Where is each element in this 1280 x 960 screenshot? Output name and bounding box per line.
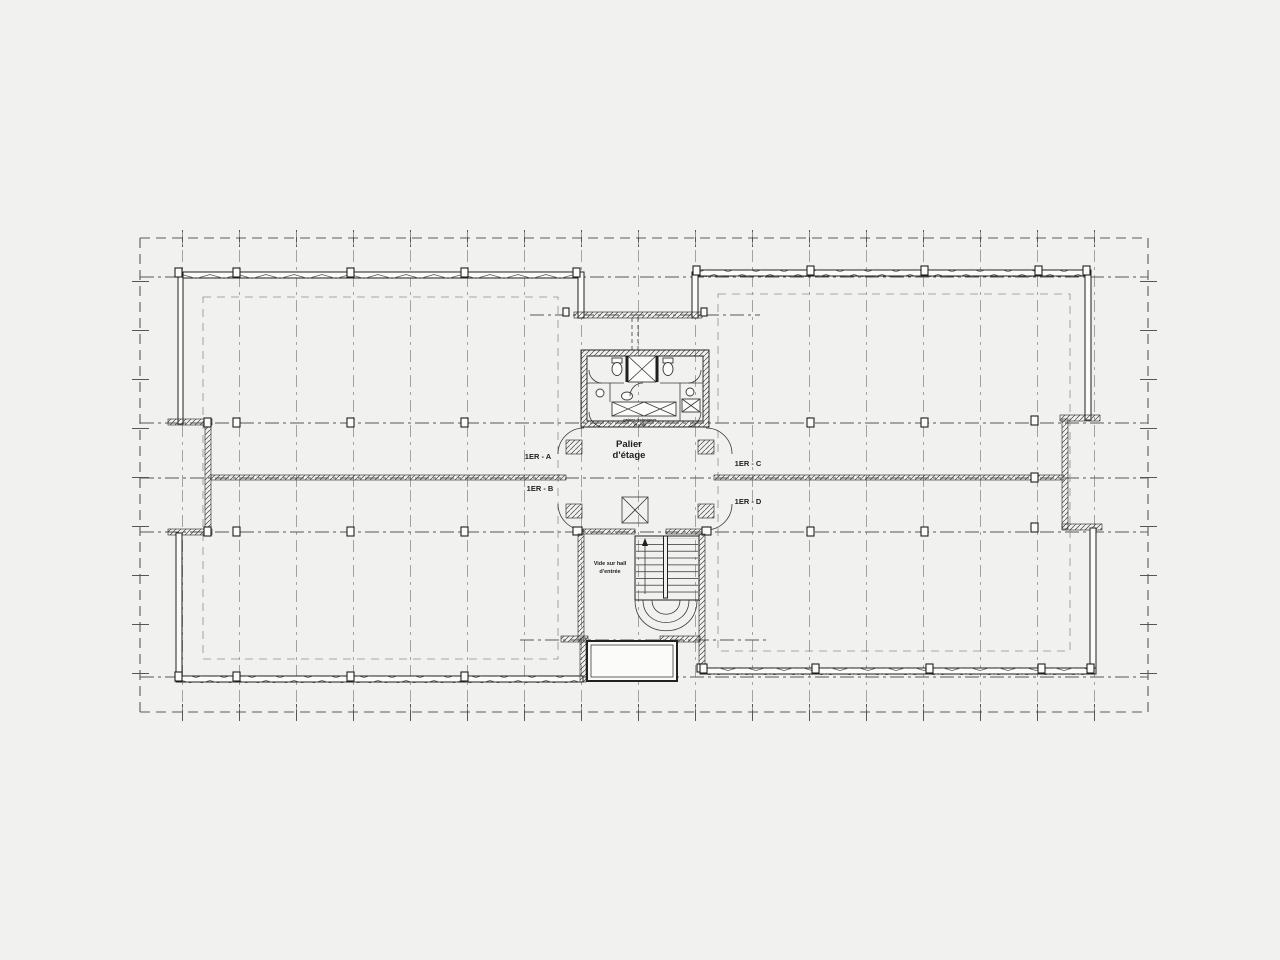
boundary-ticks-right [1140, 255, 1157, 685]
wall-void-west [578, 534, 584, 640]
wall-west-lower [176, 533, 182, 682]
lower-room [587, 641, 677, 681]
wc-left [612, 363, 622, 376]
jamb-east-upper [698, 440, 714, 454]
landing-label-line2: d'étage [613, 450, 646, 461]
wall-corridor-right [714, 475, 1064, 480]
zone-label-1er-b: 1ER - B [527, 484, 554, 493]
boundary-ticks-left [132, 255, 149, 685]
zone-label-1er-d: 1ER - D [735, 497, 762, 506]
stair-flight-right [668, 538, 698, 596]
void-label-line1: Vide sur hall [594, 561, 627, 567]
wall-west-recessed [205, 423, 211, 533]
stair-flight-left [636, 538, 664, 596]
duct-note-line2: et vide [634, 423, 646, 427]
wall-landing-south-west [583, 529, 635, 534]
notch-wall-east [692, 272, 698, 318]
zone-label-1er-c: 1ER - C [735, 459, 762, 468]
wall-east-lower [1090, 528, 1096, 674]
wall-landing-south-east [666, 529, 706, 534]
elevator-wall-left [626, 356, 629, 382]
wall-core-west-lower [580, 638, 586, 682]
jamb-west-lower [566, 504, 582, 518]
wc-middle [622, 392, 633, 400]
zone-label-1er-a: 1ER - A [525, 452, 552, 461]
duct-note-line1: gaines techniques [623, 418, 656, 422]
elevator-wall-right [656, 356, 659, 382]
landing-label-line1: Palier [616, 439, 642, 450]
jamb-west-upper [566, 440, 582, 454]
duct-band [612, 402, 676, 416]
floor-plan-canvas: Palier d'étage 1ER - A 1ER - B 1ER - C 1… [0, 0, 1280, 960]
wall-east-recessed [1062, 419, 1068, 529]
wall-east-upper [1085, 270, 1091, 420]
notch-wall-west [578, 272, 584, 318]
glazing-north-left [183, 272, 578, 279]
notch-wall-south [574, 312, 702, 318]
wall-stair-east [699, 534, 705, 668]
jamb-east-lower [698, 504, 714, 518]
wall-west-upper [178, 272, 183, 424]
floor-plan-drawing: Palier d'étage 1ER - A 1ER - B 1ER - C 1… [0, 0, 1280, 960]
basin-right [686, 388, 694, 396]
glazing-south-right [703, 668, 1093, 675]
void-label-line2: d'entrée [599, 569, 620, 575]
glazing-north-right [698, 270, 1088, 277]
basin-left [596, 389, 604, 397]
wc-right [663, 363, 673, 376]
wall-corridor-left [211, 475, 566, 480]
